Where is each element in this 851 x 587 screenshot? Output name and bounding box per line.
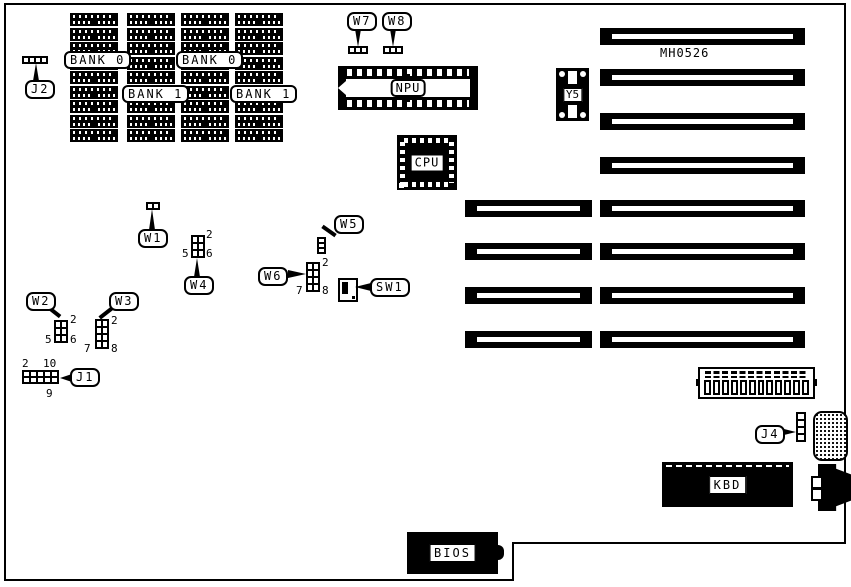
memory-chip [70, 129, 118, 142]
memory-chip [181, 13, 229, 26]
memory-chip [181, 115, 229, 128]
expansion-slot [600, 243, 805, 260]
j1-pin10-number: 10 [43, 358, 56, 369]
j1-pin9-number: 9 [46, 388, 53, 399]
kbd-label: KBD [709, 476, 747, 494]
expansion-slot [465, 243, 592, 260]
memory-chip [181, 28, 229, 41]
cpu-label: CPU [412, 155, 443, 170]
w2-pin5-number: 5 [45, 334, 52, 345]
memory-chip [235, 129, 283, 142]
memory-chip [127, 71, 175, 84]
w2-pin-header [54, 320, 68, 343]
memory-chip [235, 115, 283, 128]
power-connector-nub-right [814, 379, 817, 386]
sw1-dot [352, 296, 355, 299]
bank1-label-left: BANK 1 [122, 85, 189, 103]
y5-hole [580, 112, 586, 118]
memory-chip [70, 86, 118, 99]
expansion-slot [465, 331, 592, 348]
memory-chip [235, 28, 283, 41]
w3-pin2-number: 2 [111, 315, 118, 326]
cpu-pins-right [449, 142, 454, 183]
power-connector [698, 367, 815, 399]
y5-hole [559, 112, 565, 118]
w7-pointer [355, 29, 361, 47]
npu-notch [338, 81, 346, 95]
y5-hole [580, 71, 586, 77]
memory-chip [127, 57, 175, 70]
w8-jumper-block [383, 46, 403, 54]
memory-chip [70, 100, 118, 113]
cpu-pins-left [400, 142, 405, 183]
j1-pin-header [22, 370, 59, 384]
power-connector-holes [703, 380, 810, 395]
w4-pin-header [191, 235, 205, 258]
memory-chip [70, 28, 118, 41]
expansion-slot [600, 113, 805, 130]
memory-chip [127, 28, 175, 41]
expansion-slot [600, 28, 805, 45]
memory-chip [127, 42, 175, 55]
w4-pin5-number: 5 [182, 248, 189, 259]
motherboard-diagram: BANK 0 BANK 0 BANK 1 BANK 1 J2 W7 W8 NPU… [0, 0, 851, 587]
memory-chip [181, 129, 229, 142]
memory-chip [181, 100, 229, 113]
sw1-pointer [355, 283, 371, 291]
cpu-chip: CPU [397, 135, 457, 190]
w2-pin2-number: 2 [70, 314, 77, 325]
kbd-chip: KBD [662, 462, 793, 507]
w5-label: W5 [334, 215, 364, 234]
part-number-text: MH0526 [660, 46, 709, 60]
power-connector-nub-left [696, 379, 699, 386]
power-connector-tabs [705, 371, 808, 374]
w8-pointer [390, 29, 396, 47]
memory-chip [181, 71, 229, 84]
memory-chip [235, 71, 283, 84]
j2-pointer [33, 63, 39, 81]
y5-label: Y5 [563, 88, 582, 102]
w3-pin-header [95, 319, 109, 349]
npu-label: NPU [391, 79, 426, 97]
memory-chip [70, 71, 118, 84]
memory-chip [235, 13, 283, 26]
y5-pad-bottom [568, 105, 577, 118]
w4-pointer [194, 258, 200, 277]
w6-pin2-number: 2 [322, 257, 329, 268]
w3-pin8-number: 8 [111, 343, 118, 354]
w6-pin7-number: 7 [296, 285, 303, 296]
expansion-slot [600, 200, 805, 217]
w4-pin2-number: 2 [206, 229, 213, 240]
expansion-slot [600, 157, 805, 174]
j1-pin2-number: 2 [22, 358, 29, 369]
din-tab-lower [811, 488, 823, 501]
w1-pointer [149, 209, 155, 230]
w6-label: W6 [258, 267, 288, 286]
bank0-label-right: BANK 0 [176, 51, 243, 69]
cpu-pins-top [404, 138, 450, 143]
expansion-slot [600, 331, 805, 348]
power-connector-line [705, 376, 808, 378]
sw1-actuator [342, 282, 348, 294]
y5-pad-top [568, 71, 577, 84]
y5-crystal: Y5 [556, 68, 589, 121]
w5-jumper-block [317, 237, 326, 254]
w6-pointer [288, 270, 306, 278]
y5-hole [559, 71, 565, 77]
bank1-label-right: BANK 1 [230, 85, 297, 103]
memory-chip [70, 13, 118, 26]
npu-chip: NPU [338, 66, 478, 110]
bios-label: BIOS [429, 544, 476, 562]
w8-label: W8 [382, 12, 412, 31]
w3-pin7-number: 7 [84, 343, 91, 354]
expansion-slot [600, 69, 805, 86]
j4-label: J4 [755, 425, 785, 444]
expansion-slot [465, 200, 592, 217]
memory-chip [70, 115, 118, 128]
w7-jumper-block [348, 46, 368, 54]
w4-label: W4 [184, 276, 214, 295]
j4-pin-header [796, 412, 806, 442]
w2-label: W2 [26, 292, 56, 311]
w7-label: W7 [347, 12, 377, 31]
bank0-label-left: BANK 0 [64, 51, 131, 69]
j1-label: J1 [70, 368, 100, 387]
memory-chip [127, 115, 175, 128]
memory-chip [127, 129, 175, 142]
w1-label: W1 [138, 229, 168, 248]
bios-chip: BIOS [407, 532, 498, 574]
keyboard-din-connector-top [813, 411, 848, 461]
cpu-pins-bottom [404, 182, 450, 187]
expansion-slot [600, 287, 805, 304]
w6-pin8-number: 8 [322, 285, 329, 296]
w6-pin-header [306, 262, 320, 292]
memory-chip [127, 13, 175, 26]
w2-pin6-number: 6 [70, 334, 77, 345]
expansion-slot [465, 287, 592, 304]
sw1-label: SW1 [370, 278, 410, 297]
j2-label: J2 [25, 80, 55, 99]
w3-label: W3 [109, 292, 139, 311]
kbd-chip-dash [666, 465, 789, 467]
cpu-pin1-notch [399, 183, 404, 188]
w4-pin6-number: 6 [206, 248, 213, 259]
